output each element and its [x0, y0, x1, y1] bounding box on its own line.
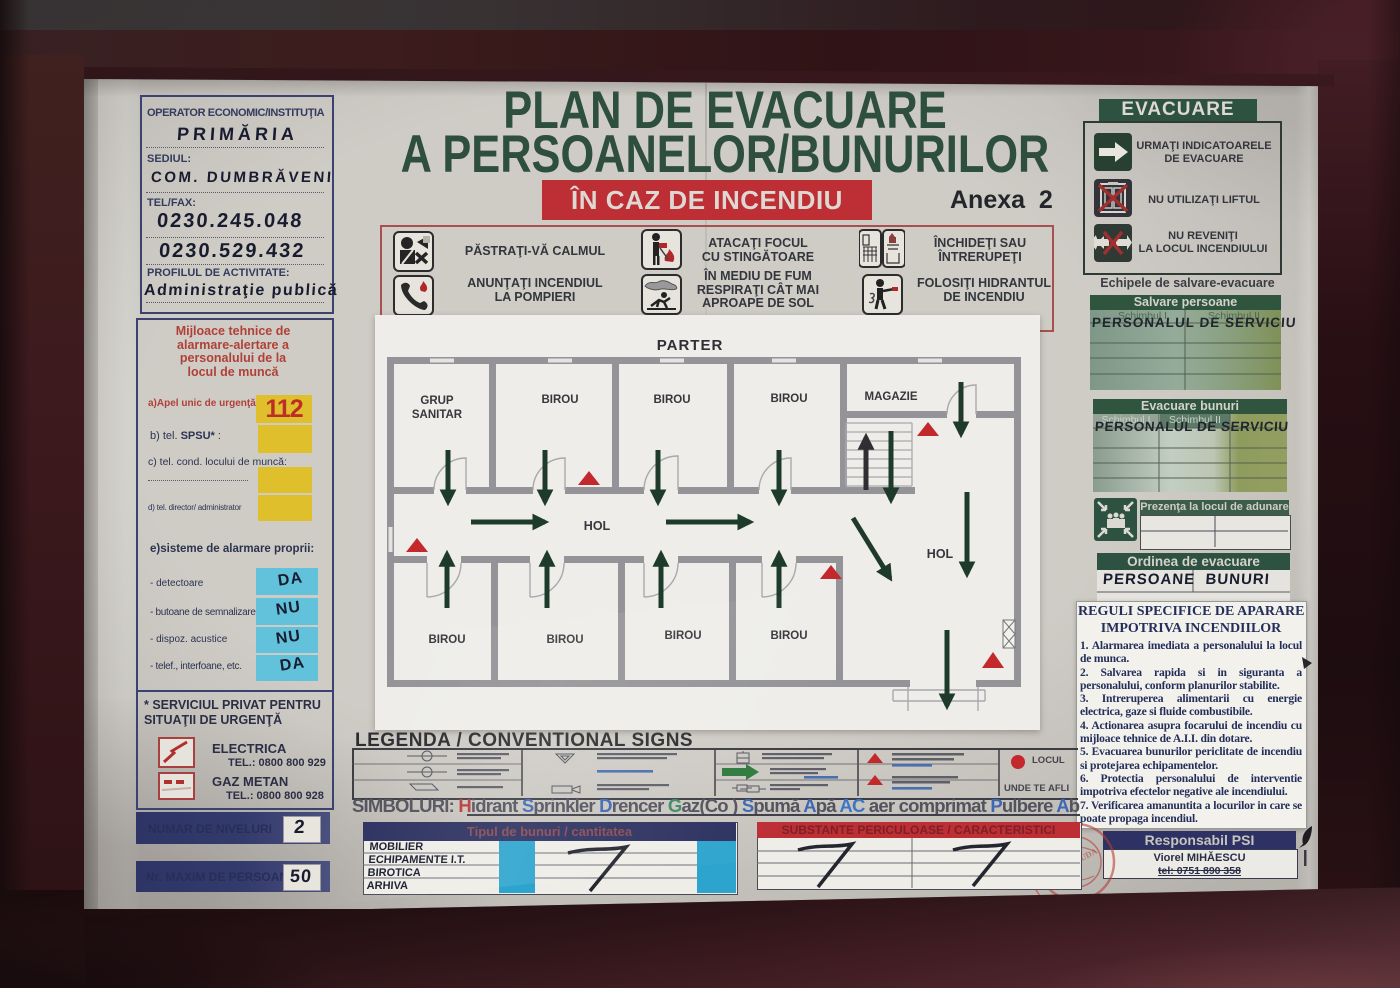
svg-text:GRUP: GRUP — [420, 395, 454, 407]
svg-text:BIROU: BIROU — [541, 394, 578, 406]
svg-text:HOL: HOL — [927, 547, 954, 561]
svg-text:BIROU: BIROU — [770, 393, 807, 405]
svg-text:MAGAZIE: MAGAZIE — [864, 391, 917, 403]
svg-text:SANITAR: SANITAR — [412, 409, 463, 421]
svg-text:BIROU: BIROU — [653, 394, 690, 406]
svg-text:HOL: HOL — [584, 519, 611, 533]
svg-text:PARTER: PARTER — [657, 337, 724, 354]
